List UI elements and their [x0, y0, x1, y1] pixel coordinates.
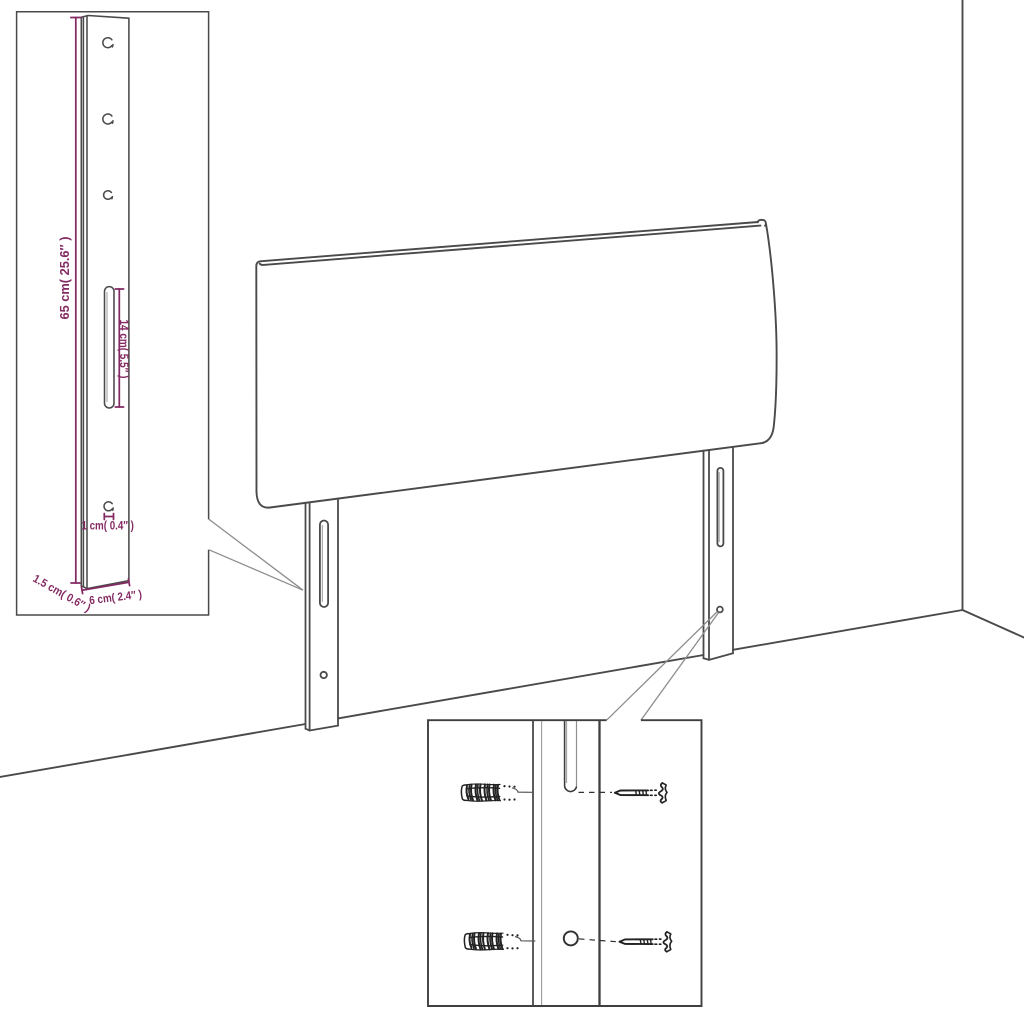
- svg-text:14 cm( 5.5″ ): 14 cm( 5.5″ ): [117, 320, 131, 379]
- svg-text:1 cm( 0.4″ ): 1 cm( 0.4″ ): [81, 521, 134, 533]
- svg-text:65 cm( 25.6″ ): 65 cm( 25.6″ ): [57, 237, 72, 320]
